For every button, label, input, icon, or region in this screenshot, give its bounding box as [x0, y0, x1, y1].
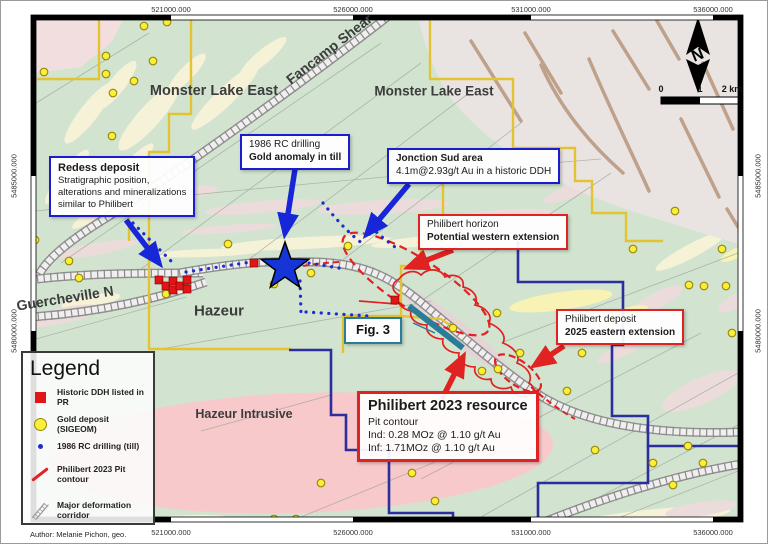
legend-item-label: Historic DDH listed in PR [57, 387, 146, 407]
grid-label-top-1: 521000.000 [151, 5, 191, 14]
scale-0: 0 [658, 84, 663, 94]
red-square-icon [30, 392, 50, 403]
callout-fig3: Fig. 3 [344, 317, 402, 344]
scale-1: 1 [697, 84, 702, 94]
map-figure: 521000.000 526000.000 531000.000 536000.… [0, 0, 768, 544]
callout-1986-line1: 1986 RC drilling [249, 139, 341, 152]
blue-dot-icon [30, 444, 50, 449]
grid-label-left-2: 5480000.000 [10, 309, 19, 353]
callout-horizon-line1: Philibert horizon [427, 219, 559, 232]
callout-jonction-line1: 4.1m@2.93g/t Au in a historic DDH [396, 166, 551, 179]
legend-item-deformation-corridor: Major deformation corridor [30, 497, 146, 523]
legend-item-gold-deposit: Gold deposit (SIGEOM) [30, 414, 146, 434]
callout-redess-line1: Stratigraphic position, [58, 175, 186, 187]
grid-label-bottom-4: 536000.000 [693, 528, 733, 537]
grid-label-bottom-2: 526000.000 [333, 528, 373, 537]
callout-philibert-horizon: Philibert horizon Potential western exte… [418, 214, 568, 250]
callout-redess-line3: similar to Philibert [58, 199, 186, 211]
label-hazeur-intrusive: Hazeur Intrusive [195, 407, 292, 421]
callout-redess-title: Redess deposit [58, 161, 186, 175]
grid-label-left-1: 5485000.000 [10, 154, 19, 198]
grid-label-bottom-1: 521000.000 [151, 528, 191, 537]
callout-1986-line2: Gold anomaly in till [249, 152, 341, 165]
callout-jonction-title: Jonction Sud area [396, 153, 551, 166]
grid-label-top-3: 531000.000 [511, 5, 551, 14]
callout-resource-line3: Inf: 1.71MOz @ 1.10 g/t Au [368, 442, 528, 455]
grid-label-right-2: 5480000.000 [754, 309, 763, 353]
callout-redess-line2: alterations and mineralizations [58, 187, 186, 199]
label-monster-lake-east-west: Monster Lake East [150, 83, 278, 99]
grid-label-top-4: 536000.000 [693, 5, 733, 14]
callout-deposit-line2: 2025 eastern extension [565, 327, 675, 340]
legend-item-pit-contour: Philibert 2023 Pit contour [30, 464, 146, 484]
callout-redess-deposit: Redess deposit Stratigraphic position, a… [49, 156, 195, 217]
callout-deposit-line1: Philibert deposit [565, 314, 675, 327]
red-line-icon [30, 473, 50, 476]
legend-title: Legend [30, 357, 146, 381]
legend-item-label: Major deformation corridor [57, 500, 146, 520]
legend-item-label: Gold deposit (SIGEOM) [57, 414, 146, 434]
callout-fig3-label: Fig. 3 [356, 322, 390, 339]
label-monster-lake-east-east: Monster Lake East [374, 84, 493, 99]
gold-circle-icon [30, 418, 50, 431]
callout-philibert-deposit: Philibert deposit 2025 eastern extension [556, 309, 684, 345]
hatched-corridor-icon [30, 497, 50, 523]
legend-item-label: 1986 RC drilling (till) [57, 441, 139, 451]
callout-resource-title: Philibert 2023 resource [368, 397, 528, 416]
grid-label-right-1: 5485000.000 [754, 154, 763, 198]
callout-jonction-sud: Jonction Sud area 4.1m@2.93g/t Au in a h… [387, 148, 560, 184]
scale-bar [661, 97, 739, 104]
callout-1986-rc-drilling: 1986 RC drilling Gold anomaly in till [240, 134, 350, 170]
legend-item-rc-drilling: 1986 RC drilling (till) [30, 441, 146, 451]
callout-philibert-2023-resource: Philibert 2023 resource Pit contour Ind:… [357, 391, 539, 462]
callout-resource-line1: Pit contour [368, 416, 528, 429]
grid-label-bottom-3: 531000.000 [511, 528, 551, 537]
legend-box: Legend Historic DDH listed in PR Gold de… [21, 351, 155, 525]
callout-horizon-line2: Potential western extension [427, 232, 559, 245]
legend-item-label: Philibert 2023 Pit contour [57, 464, 146, 484]
legend-author: Author: Melanie Pichon, geo. [30, 530, 146, 539]
callout-resource-line2: Ind: 0.28 MOz @ 1.10 g/t Au [368, 429, 528, 442]
legend-item-historic-ddh: Historic DDH listed in PR [30, 387, 146, 407]
scale-2km: 2 km [722, 84, 743, 94]
label-hazeur: Hazeur [194, 303, 244, 320]
